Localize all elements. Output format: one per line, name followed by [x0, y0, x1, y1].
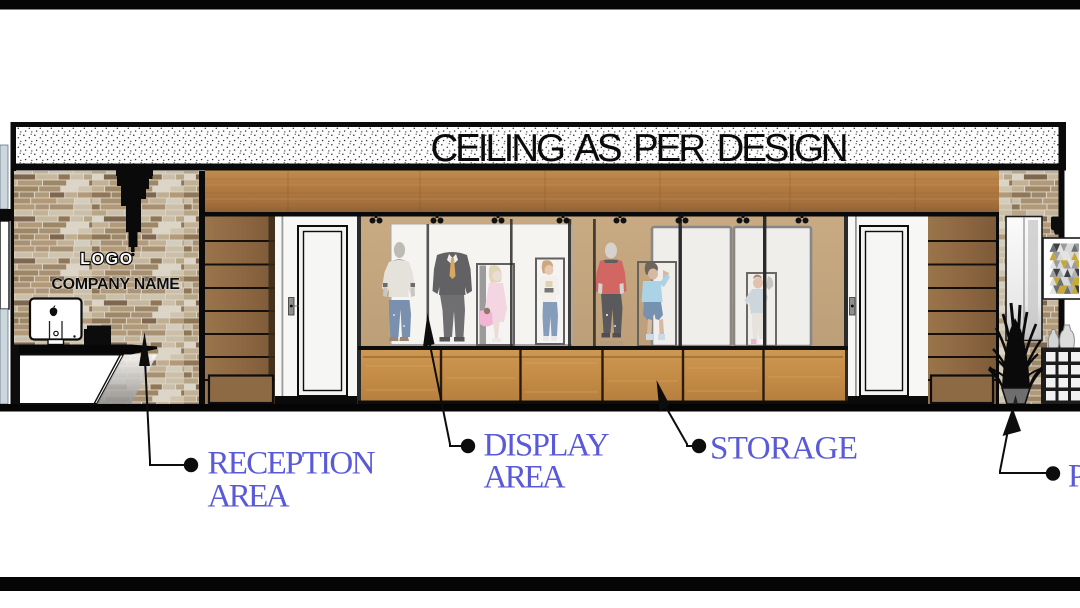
svg-text:PL: PL — [1068, 459, 1080, 495]
svg-text:AREA: AREA — [484, 460, 566, 496]
svg-text:STORAGE: STORAGE — [710, 431, 857, 467]
svg-text:COMPANY NAME: COMPANY NAME — [51, 276, 180, 293]
svg-text:LOGO: LOGO — [80, 251, 134, 268]
svg-text:RECEPTION: RECEPTION — [208, 446, 376, 482]
svg-text:CEILING AS PER DESIGN: CEILING AS PER DESIGN — [430, 127, 845, 170]
svg-text:DISPLAY: DISPLAY — [484, 428, 609, 464]
svg-text:AREA: AREA — [208, 479, 290, 515]
